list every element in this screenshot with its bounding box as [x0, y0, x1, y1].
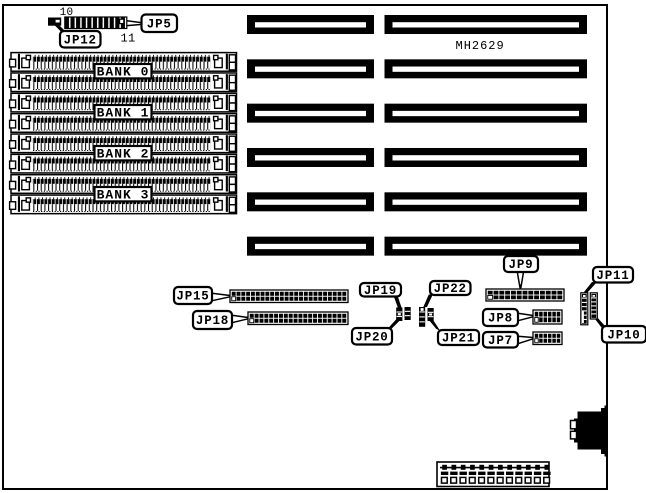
svg-text:MH2629: MH2629	[456, 39, 505, 53]
svg-text:JP15: JP15	[176, 290, 209, 304]
svg-text:JP12: JP12	[64, 33, 97, 47]
svg-text:JP8: JP8	[488, 312, 513, 326]
svg-text:JP5: JP5	[147, 17, 172, 31]
svg-text:JP10: JP10	[607, 328, 640, 342]
svg-text:BANK 0: BANK 0	[97, 65, 150, 80]
svg-text:JP19: JP19	[364, 284, 397, 298]
svg-text:JP21: JP21	[442, 332, 475, 346]
svg-text:JP20: JP20	[355, 330, 388, 344]
svg-text:JP11: JP11	[596, 269, 629, 283]
svg-text:JP7: JP7	[488, 334, 513, 348]
svg-text:BANK 2: BANK 2	[97, 147, 150, 162]
svg-text:BANK 3: BANK 3	[97, 188, 150, 203]
svg-text:BANK 1: BANK 1	[97, 106, 150, 121]
svg-text:JP18: JP18	[196, 314, 229, 328]
svg-text:11: 11	[120, 32, 135, 46]
svg-text:10: 10	[60, 7, 74, 19]
svg-text:JP9: JP9	[509, 258, 534, 272]
svg-text:JP22: JP22	[434, 282, 467, 296]
